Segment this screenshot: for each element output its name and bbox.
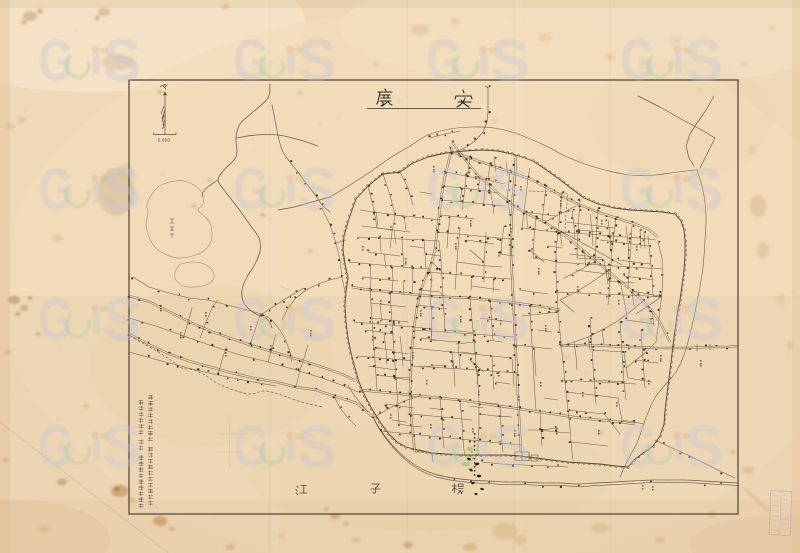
svg-text:S: S [685,157,723,224]
svg-text:S: S [491,28,529,95]
svg-text:S: S [103,157,141,224]
svg-text:S: S [103,287,141,354]
svg-text:S: S [103,28,141,95]
svg-text:S: S [298,287,336,354]
svg-text:S: S [298,414,336,481]
svg-text:S: S [103,414,141,481]
svg-text:S: S [491,287,529,354]
svg-text:S: S [685,287,723,354]
svg-text:5,000: 5,000 [158,138,171,143]
svg-text:S: S [298,157,336,224]
svg-text:S: S [685,28,723,95]
svg-text:S: S [298,28,336,95]
svg-text:S: S [491,157,529,224]
svg-text:S: S [491,414,529,481]
svg-text:S: S [685,414,723,481]
